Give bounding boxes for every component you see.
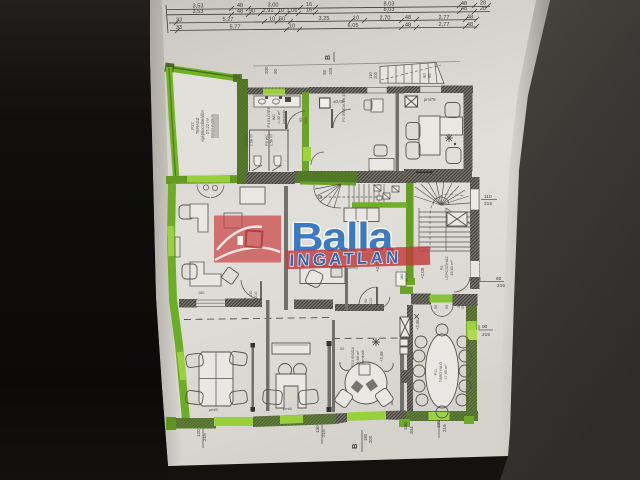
- svg-text:205: 205: [303, 117, 308, 124]
- svg-text:100: 100: [436, 420, 441, 428]
- svg-text:204: 204: [368, 435, 373, 443]
- svg-text:105: 105: [328, 67, 333, 75]
- svg-text:210: 210: [254, 292, 258, 298]
- svg-text:48: 48: [467, 15, 473, 21]
- svg-text:170: 170: [243, 298, 247, 304]
- svg-text:90: 90: [273, 68, 278, 74]
- svg-text:90: 90: [482, 324, 488, 330]
- svg-text:120: 120: [196, 429, 201, 437]
- svg-text:90: 90: [434, 305, 438, 309]
- svg-text:200: 200: [373, 71, 378, 79]
- svg-text:+2,08: +2,08: [420, 267, 425, 279]
- svg-text:50: 50: [340, 347, 344, 351]
- svg-text:95: 95: [322, 70, 327, 75]
- svg-text:8,03: 8,03: [384, 7, 395, 13]
- svg-text:95: 95: [427, 73, 432, 78]
- svg-text:2,77: 2,77: [439, 15, 450, 21]
- svg-text:B: B: [350, 443, 359, 449]
- svg-text:180: 180: [198, 291, 204, 295]
- svg-text:48: 48: [467, 22, 473, 28]
- svg-text:48: 48: [405, 23, 411, 29]
- svg-text:pml5: pml5: [209, 407, 218, 412]
- svg-text:200: 200: [264, 66, 269, 74]
- svg-text:05: 05: [461, 305, 465, 309]
- svg-text:INGATLAN: INGATLAN: [289, 248, 402, 271]
- svg-text:130: 130: [315, 425, 320, 433]
- svg-text:P5 WC: P5 WC: [265, 134, 269, 146]
- svg-text:2,91: 2,91: [263, 8, 274, 14]
- svg-text:215: 215: [482, 332, 490, 338]
- svg-text:5,77: 5,77: [230, 24, 241, 30]
- svg-text:1,06: 1,06: [287, 8, 298, 14]
- svg-text:WC: WC: [272, 114, 276, 121]
- svg-text:16: 16: [306, 8, 312, 14]
- svg-text:P3 ELŐTÉR: P3 ELŐTÉR: [266, 106, 271, 127]
- svg-text:190: 190: [249, 291, 253, 297]
- svg-text:110: 110: [484, 194, 492, 200]
- svg-text:180: 180: [400, 274, 404, 280]
- svg-text:6,05: 6,05: [348, 23, 359, 29]
- svg-text:P11: P11: [434, 369, 438, 375]
- svg-text:9,88 m²: 9,88 m²: [356, 350, 360, 364]
- svg-text:+2,08: +2,08: [415, 319, 420, 330]
- svg-text:33: 33: [176, 17, 182, 23]
- svg-text:pml6: pml6: [283, 406, 292, 411]
- svg-text:215: 215: [484, 201, 492, 207]
- svg-text:10: 10: [278, 8, 284, 14]
- svg-text:P4 WC: P4 WC: [245, 134, 249, 146]
- svg-text:90: 90: [364, 299, 368, 303]
- svg-text:16,81 m²: 16,81 m²: [449, 260, 454, 276]
- svg-text:48: 48: [405, 15, 411, 21]
- svg-text:1,58 m²: 1,58 m²: [250, 133, 254, 146]
- svg-text:215: 215: [497, 283, 505, 289]
- svg-text:P10 IRODA: P10 IRODA: [351, 347, 355, 367]
- svg-text:10: 10: [289, 24, 295, 30]
- svg-text:33: 33: [176, 25, 182, 31]
- svg-text:3,53: 3,53: [193, 9, 204, 15]
- svg-text:2,70: 2,70: [380, 15, 391, 21]
- svg-text:P2 IRODA 16,15 m²: P2 IRODA 16,15 m²: [341, 86, 346, 122]
- svg-text:28: 28: [480, 6, 486, 12]
- svg-text:5,27: 5,27: [223, 17, 234, 23]
- svg-text:3,25: 3,25: [319, 16, 330, 22]
- svg-text:10: 10: [269, 17, 275, 23]
- svg-text:210: 210: [369, 298, 373, 304]
- svg-text:TÁRGYALÓ: TÁRGYALÓ: [438, 362, 443, 382]
- svg-text:laminalt: laminalt: [361, 350, 365, 364]
- svg-text:204: 204: [409, 426, 414, 434]
- svg-text:46: 46: [405, 278, 409, 282]
- svg-text:90: 90: [249, 8, 255, 14]
- svg-text:B: B: [325, 55, 332, 60]
- svg-text:2,77: 2,77: [439, 22, 450, 28]
- svg-text:10: 10: [353, 16, 359, 22]
- svg-text:pml75: pml75: [424, 97, 436, 102]
- svg-text:17,65 m²: 17,65 m²: [444, 364, 448, 380]
- svg-text:60: 60: [496, 276, 502, 282]
- svg-text:90: 90: [445, 305, 449, 309]
- svg-text:1,58 m²: 1,58 m²: [270, 133, 274, 146]
- svg-text:48: 48: [461, 6, 467, 12]
- svg-text:48: 48: [237, 8, 243, 14]
- svg-text:180: 180: [403, 422, 408, 430]
- svg-text:+2,08: +2,08: [379, 351, 384, 362]
- svg-text:215: 215: [442, 424, 447, 432]
- svg-text:4,30 m²: 4,30 m²: [277, 110, 281, 124]
- svg-text:50: 50: [279, 16, 285, 22]
